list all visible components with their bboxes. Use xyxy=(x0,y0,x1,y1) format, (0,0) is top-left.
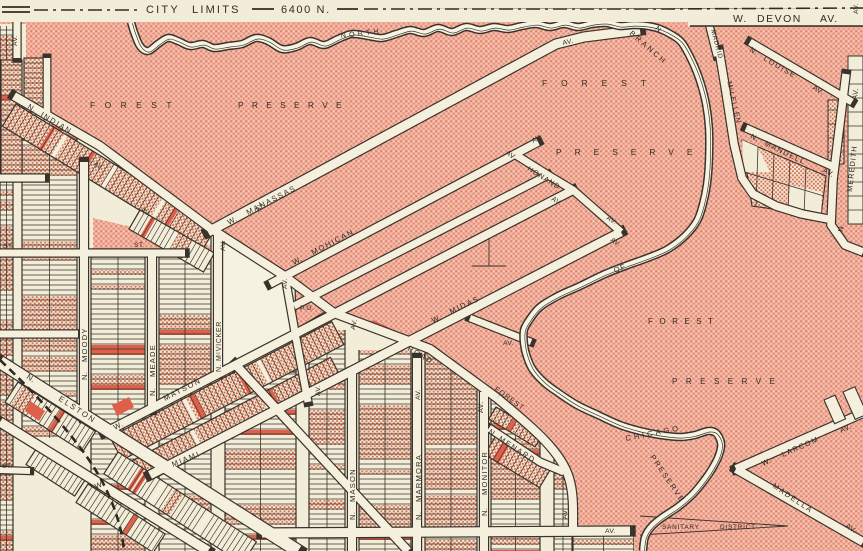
svg-text:DISTRICT: DISTRICT xyxy=(720,524,756,531)
svg-text:AV.: AV. xyxy=(415,389,422,400)
svg-text:AV.: AV. xyxy=(476,401,485,413)
svg-text:N.: N. xyxy=(216,364,223,372)
svg-text:AV.: AV. xyxy=(315,385,322,396)
svg-text:N.: N. xyxy=(836,223,846,232)
svg-text:MᶜVICKER: MᶜVICKER xyxy=(216,321,223,361)
svg-text:DEVON: DEVON xyxy=(757,13,802,25)
svg-text:SANITARY: SANITARY xyxy=(662,524,700,531)
svg-text:AV.: AV. xyxy=(820,13,838,25)
svg-text:PRESERVE: PRESERVE xyxy=(556,147,705,157)
svg-text:MASON: MASON xyxy=(348,468,357,502)
svg-text:ST.: ST. xyxy=(3,243,14,250)
svg-text:AV.: AV. xyxy=(503,340,514,347)
svg-text:CITY: CITY xyxy=(146,4,180,16)
svg-text:P.G.: P.G. xyxy=(300,305,314,312)
svg-text:MOODY: MOODY xyxy=(80,327,89,362)
svg-text:FOREST: FOREST xyxy=(542,78,660,88)
svg-text:N.: N. xyxy=(414,512,423,520)
svg-text:ST.: ST. xyxy=(134,242,145,249)
svg-text:AV.: AV. xyxy=(605,528,616,535)
svg-text:ST.: ST. xyxy=(2,463,13,470)
svg-text:AV.: AV. xyxy=(850,87,860,100)
svg-text:MARMORA: MARMORA xyxy=(414,454,423,502)
svg-text:MONITOR: MONITOR xyxy=(480,451,489,495)
svg-text:MEADE: MEADE xyxy=(148,344,157,377)
svg-text:AV.: AV. xyxy=(562,508,569,519)
svg-text:N.: N. xyxy=(148,388,157,396)
svg-text:FOREST: FOREST xyxy=(90,100,181,110)
svg-text:PRESERVE: PRESERVE xyxy=(672,377,783,386)
svg-text:AV.: AV. xyxy=(853,3,860,14)
svg-text:PRESERVE: PRESERVE xyxy=(238,100,350,110)
svg-text:6400 N.: 6400 N. xyxy=(281,4,331,16)
svg-text:N.: N. xyxy=(80,372,89,380)
svg-text:AV.: AV. xyxy=(12,35,19,46)
svg-text:N.: N. xyxy=(348,512,357,520)
svg-text:AV.: AV. xyxy=(282,278,289,289)
svg-text:LIMITS: LIMITS xyxy=(192,4,241,16)
svg-text:N.: N. xyxy=(480,508,489,516)
svg-text:FOREST: FOREST xyxy=(648,317,719,326)
svg-text:W.: W. xyxy=(733,13,747,25)
svg-text:AV.: AV. xyxy=(220,240,227,251)
